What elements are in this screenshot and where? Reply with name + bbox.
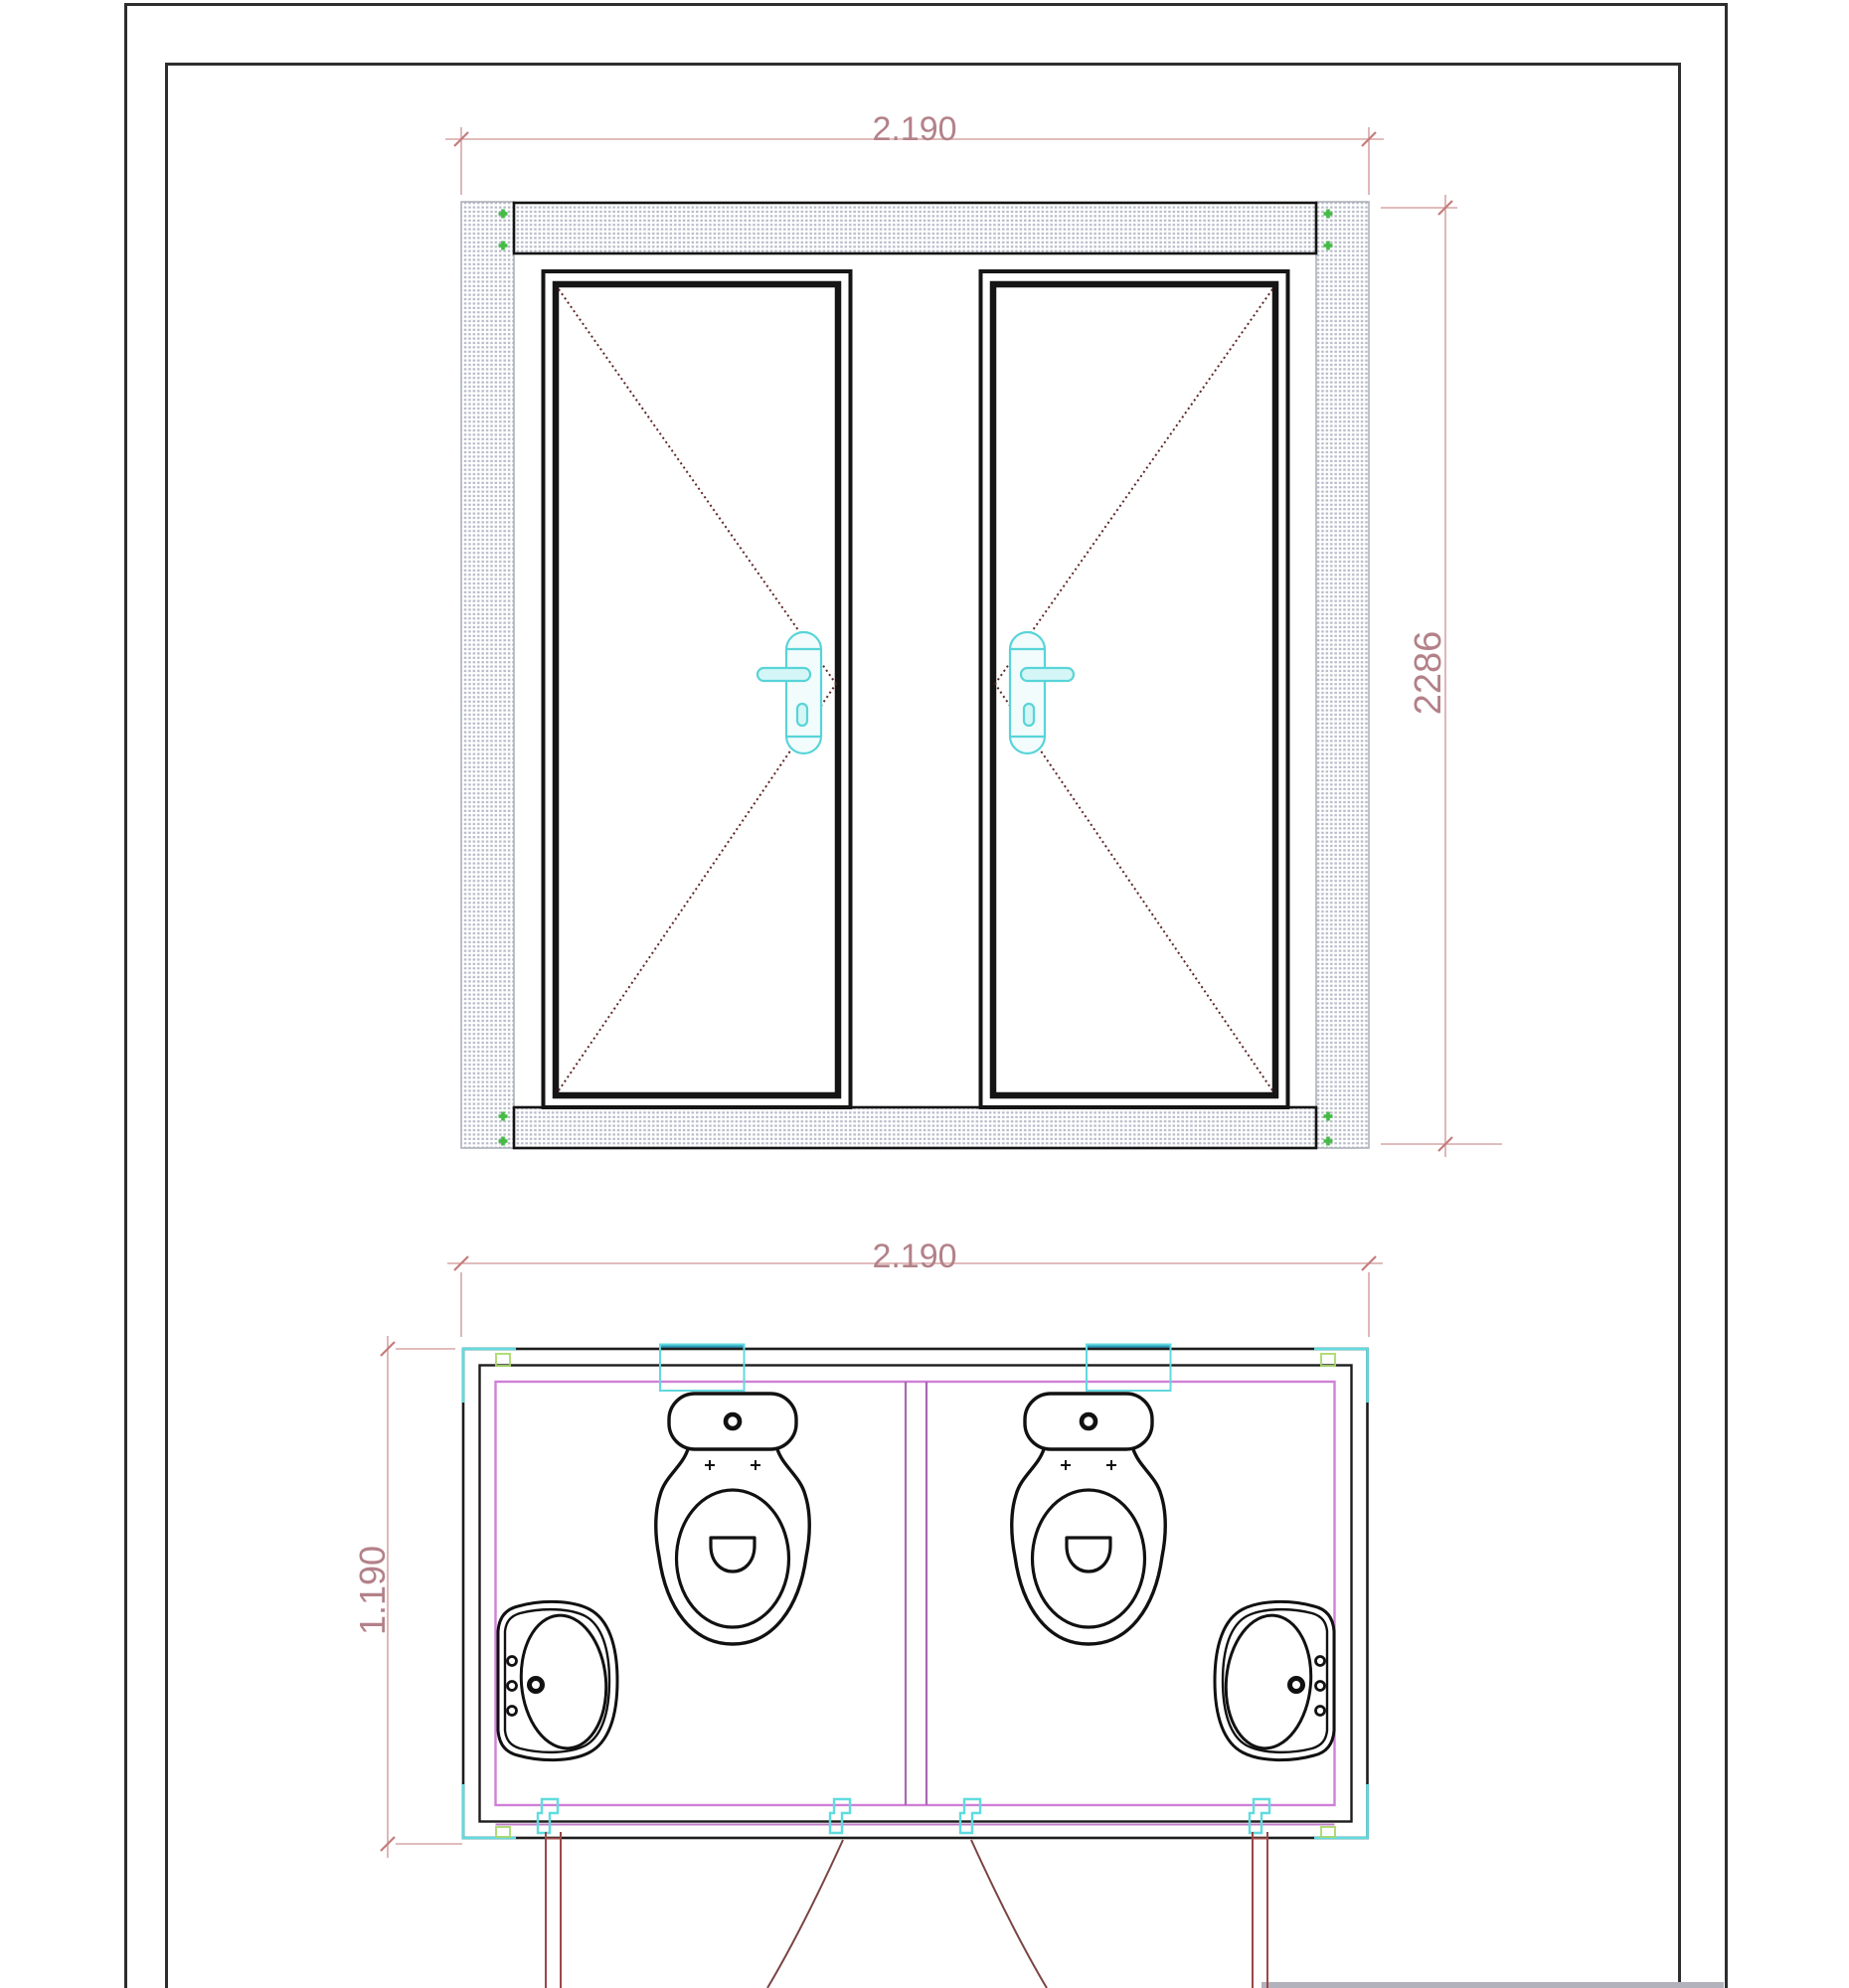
svg-text:2.190: 2.190 — [872, 1238, 956, 1275]
svg-text:1.190: 1.190 — [352, 1546, 393, 1635]
svg-text:2.190: 2.190 — [872, 110, 956, 148]
svg-text:2286: 2286 — [1408, 631, 1449, 716]
